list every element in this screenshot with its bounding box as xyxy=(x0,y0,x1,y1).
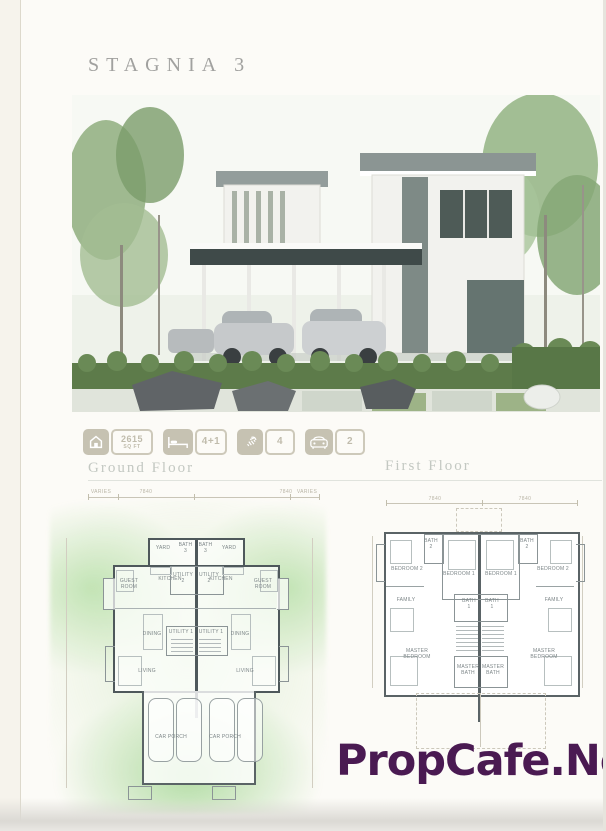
room-label-bath3-left: BATH 3 xyxy=(177,542,194,554)
scan-left-edge xyxy=(0,0,21,831)
master-bed-left xyxy=(390,656,418,686)
spec-badges-row: 2615 SQ FT 4+1 4 xyxy=(83,429,365,455)
dimension-line xyxy=(88,497,320,498)
balcony-left xyxy=(376,544,385,582)
room-label-dining-left: DINING xyxy=(136,631,168,637)
room-label-living-right: LIVING xyxy=(230,668,260,674)
shower-icon xyxy=(237,429,263,455)
interior-wall xyxy=(386,586,424,587)
room-label-utility2-left: UTILITY 2 xyxy=(172,572,194,584)
room-label-family-right: FAMILY xyxy=(538,597,570,603)
stairs-left xyxy=(456,626,478,652)
car-outline xyxy=(176,698,202,762)
room-label-bath2-left: BATH 2 xyxy=(422,538,440,550)
room-label-bath3-right: BATH 3 xyxy=(197,542,214,554)
car-outline xyxy=(209,698,235,762)
bedrooms-badge: 4+1 xyxy=(163,429,227,455)
page-title: STAGNIA 3 xyxy=(88,54,251,77)
room-label-master-right: MASTER BEDROOM xyxy=(522,648,566,660)
room-label-kitchen-right: KITCHEN xyxy=(204,576,238,582)
bedrooms-value: 4+1 xyxy=(195,429,227,455)
dimension-label: 7840 xyxy=(126,489,166,495)
left-bay-bump xyxy=(105,646,115,682)
carpark-value: 2 xyxy=(335,429,365,455)
stairs-right xyxy=(482,626,504,652)
hero-image xyxy=(72,95,600,412)
kitchen-counter-right xyxy=(222,567,244,575)
family-sofa-right xyxy=(548,608,572,632)
bed-bedroom2-right xyxy=(550,540,572,564)
scan-bottom-shadow xyxy=(0,798,606,831)
room-label-masterbath-left: MASTER BATH xyxy=(456,664,480,676)
built-up-value: 2615 SQ FT xyxy=(111,429,153,455)
room-label-carporch-right: CAR PORCH xyxy=(200,734,250,740)
room-label-master-left: MASTER BEDROOM xyxy=(395,648,439,660)
room-label-family-left: FAMILY xyxy=(390,597,422,603)
room-label-carporch-left: CAR PORCH xyxy=(146,734,196,740)
kitchen-counter-left xyxy=(150,567,172,575)
room-label-bedroom2-left: BEDROOM 2 xyxy=(388,566,426,572)
carpark-badge: 2 xyxy=(305,429,365,455)
room-label-bath1-left: BATH 1 xyxy=(460,598,478,610)
room-label-bath1-right: BATH 1 xyxy=(483,598,501,610)
dimension-label: VARIES xyxy=(86,489,116,495)
right-closet-bump xyxy=(277,578,289,610)
balcony-right xyxy=(576,544,585,582)
right-bay-bump xyxy=(279,646,289,682)
master-bed-right xyxy=(544,656,572,686)
room-label-living-left: LIVING xyxy=(132,668,162,674)
room-label-bath2-right: BATH 2 xyxy=(518,538,536,550)
dimension-label: 7840 xyxy=(410,496,460,502)
room-label-guest-right: GUEST ROOM xyxy=(250,578,276,590)
interior-wall xyxy=(115,608,276,609)
built-up-badge: 2615 SQ FT xyxy=(83,429,153,455)
dimension-label: 7840 xyxy=(500,496,550,502)
room-label-bedroom1-right: BEDROOM 1 xyxy=(482,571,520,577)
car-outline xyxy=(148,698,174,762)
house-rendering-illustration xyxy=(72,95,600,412)
bed-bedroom1-right xyxy=(486,540,514,570)
car-icon xyxy=(305,429,333,455)
dimension-label: VARIES xyxy=(292,489,322,495)
left-closet-bump xyxy=(103,578,115,610)
room-label-dining-right: DINING xyxy=(224,631,256,637)
bathrooms-value: 4 xyxy=(265,429,295,455)
section-divider xyxy=(88,480,602,481)
car-outline xyxy=(237,698,263,762)
interior-wall xyxy=(536,586,574,587)
dimension-line xyxy=(66,538,67,788)
dimension-line xyxy=(312,538,313,788)
room-label-bedroom1-left: BEDROOM 1 xyxy=(440,571,478,577)
scanned-brochure-page: STAGNIA 3 xyxy=(0,0,606,831)
room-label-yard-left: YARD xyxy=(150,545,176,551)
room-label-guest-left: GUEST ROOM xyxy=(116,578,142,590)
bed-bedroom2-left xyxy=(390,540,412,564)
ground-floor-plan: VARIES 7840 7840 VARIES xyxy=(58,486,320,820)
room-label-utility1-left: UTILITY 1 xyxy=(168,629,194,635)
stairs-right xyxy=(199,639,221,652)
room-label-yard-right: YARD xyxy=(216,545,242,551)
ground-floor-heading: Ground Floor xyxy=(88,460,194,477)
room-label-utility1-right: UTILITY 1 xyxy=(198,629,224,635)
family-sofa-left xyxy=(390,608,414,632)
room-label-masterbath-right: MASTER BATH xyxy=(481,664,505,676)
first-floor-plan: 7840 7840 BATH 2 BEDROOM 1 BEDROOM 1 xyxy=(368,496,586,758)
roof-outline xyxy=(456,508,502,532)
house-area-icon xyxy=(83,429,109,455)
watermark-text: PropCafe.Net xyxy=(336,736,606,786)
first-floor-heading: First Floor xyxy=(385,458,471,475)
bed-bedroom1-left xyxy=(448,540,476,570)
room-label-bedroom2-right: BEDROOM 2 xyxy=(534,566,572,572)
stairs-left xyxy=(171,639,193,652)
bathrooms-badge: 4 xyxy=(237,429,295,455)
dimension-line xyxy=(372,536,373,688)
bed-icon xyxy=(163,429,193,455)
